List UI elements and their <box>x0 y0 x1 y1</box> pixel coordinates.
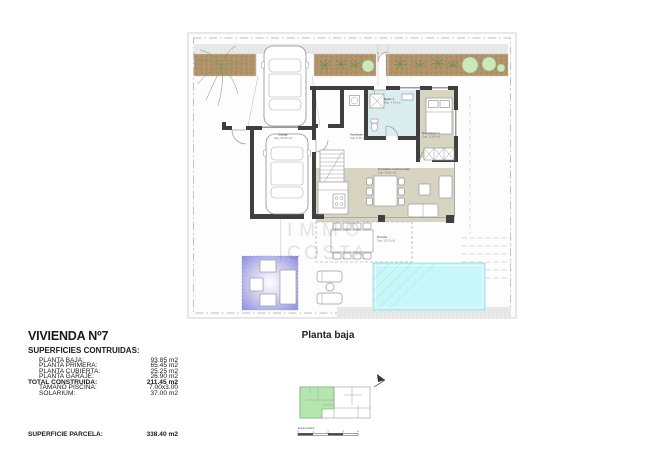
floor-plan-sheet: IMMO COSTA Garaje Sup: 26.90 m2 Vestíbul… <box>0 0 645 451</box>
extra-row-value: 37.00 m2 <box>151 391 179 396</box>
svg-text:Sup: 8.40 m2: Sup: 8.40 m2 <box>350 136 367 140</box>
parcel-row: SUPERFICIE PARCELA: 338.40 m2 <box>28 432 178 437</box>
pillar <box>378 215 385 222</box>
extra-row-label: SOLARIUM: <box>28 391 75 396</box>
dining-table <box>367 176 405 206</box>
pool <box>373 263 485 310</box>
sofa-icon <box>408 204 438 217</box>
pillar <box>446 215 454 223</box>
dwelling-title: VIVIENDA Nº7 <box>28 329 178 343</box>
watermark-line2: COSTA <box>287 243 369 264</box>
wardrobe-icon <box>424 148 454 160</box>
svg-text:Sup: 18.20 m2: Sup: 18.20 m2 <box>377 239 396 243</box>
garage-door <box>262 127 298 129</box>
lounge-area <box>242 256 298 310</box>
bed-icon <box>426 98 452 134</box>
car-garage-icon <box>264 134 311 214</box>
gravel-strip-top <box>194 44 508 54</box>
side-table <box>326 283 334 291</box>
scale-label: Escala Gráfica <box>298 427 315 430</box>
svg-text:Sup: 4.70 m2: Sup: 4.70 m2 <box>384 101 401 105</box>
surfaces-heading: SUPERFICIES CONTRUIDAS: <box>28 346 178 355</box>
north-arrow-icon <box>374 374 385 387</box>
window <box>432 87 448 89</box>
key-plan: Escala Gráfica 0 1 2 3 4 <box>297 374 385 435</box>
window <box>455 110 457 136</box>
scale-bar: Escala Gráfica 0 1 2 3 4 <box>297 427 359 435</box>
coffee-table <box>419 184 430 195</box>
parcel-row-value: 338.40 m2 <box>146 432 178 437</box>
svg-text:Sup: 26.90 m2: Sup: 26.90 m2 <box>274 136 293 140</box>
watermark: IMMO COSTA <box>280 216 369 264</box>
extra-row: SOLARIUM: 37.00 m2 <box>28 391 178 396</box>
stove-icon <box>333 194 345 208</box>
bush-icon <box>497 64 505 72</box>
bush-icon <box>462 57 478 73</box>
bush-icon <box>362 60 374 72</box>
parcel-row-label: SUPERFICIE PARCELA: <box>28 432 103 437</box>
title-block: VIVIENDA Nº7 SUPERFICIES CONTRUIDAS: PLA… <box>28 329 178 438</box>
window <box>400 87 420 89</box>
plan-caption: Planta baja <box>302 330 355 341</box>
svg-text:Sup: 35.80 m2: Sup: 35.80 m2 <box>378 171 397 175</box>
washer-icon <box>350 96 360 106</box>
armchair-icon <box>439 176 452 198</box>
svg-text:Sup: 11.80 m2: Sup: 11.80 m2 <box>422 135 440 139</box>
bush-icon <box>482 57 496 71</box>
kitchen-counter <box>318 182 348 214</box>
watermark-line1: IMMO <box>287 220 367 241</box>
car-driveway-icon <box>262 46 309 126</box>
